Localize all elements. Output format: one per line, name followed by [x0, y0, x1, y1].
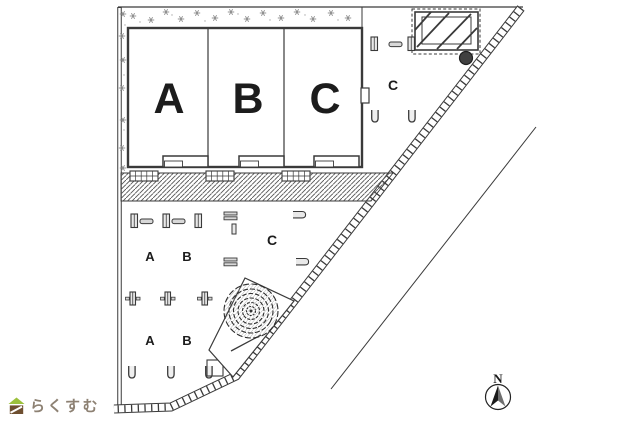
carport-structure: [412, 9, 480, 54]
unit-b-label: B: [232, 75, 263, 123]
wheel-stop-icon: [131, 214, 138, 228]
building-block: A B C: [128, 28, 369, 181]
wheel-stop-icon: [198, 292, 213, 305]
downspout-icon: [293, 212, 306, 218]
north-label: N: [493, 371, 503, 386]
side-door-bump: [361, 88, 369, 103]
upper-parking-zone: C: [371, 37, 415, 122]
wheel-stop-icon: [172, 219, 185, 224]
logo-house-icon: [8, 397, 25, 415]
downspout-icon: [129, 366, 135, 378]
grate-icon: [224, 212, 237, 220]
logo-text: らくすむ: [30, 399, 100, 414]
unit-a-label: A: [153, 75, 184, 123]
dark-circle-marker: [460, 52, 473, 65]
wheel-stop-icon: [408, 37, 415, 51]
parking-b2-label: B: [182, 333, 191, 348]
site-plan-drawing: A B C: [0, 0, 640, 425]
parking-c-upper-label: C: [388, 77, 398, 93]
downspout-icon: [409, 110, 415, 122]
logo: らくすむ: [8, 397, 100, 415]
north-arrow: N: [486, 371, 511, 410]
downspout-icon: [296, 259, 309, 265]
parking-b1-label: B: [182, 249, 191, 264]
downspout-icon: [372, 110, 378, 122]
parking-c-mid-label: C: [267, 232, 277, 248]
unit-c-label: C: [309, 75, 340, 123]
grate-icon: [224, 258, 237, 266]
wheel-stop-icon: [163, 214, 170, 228]
entrance-alcoves: [163, 156, 359, 167]
wheel-stop-icon: [161, 292, 176, 305]
wheel-stop-icon: [126, 292, 141, 305]
entrance-porches: [130, 171, 310, 181]
porch-b: [206, 171, 234, 181]
porch-c: [282, 171, 310, 181]
wheel-stop-icon: [195, 214, 202, 228]
porch-a: [130, 171, 158, 181]
parking-a1-label: A: [145, 249, 155, 264]
wheel-stop-icon: [140, 219, 153, 224]
wheel-stop-icon: [371, 37, 378, 51]
downspout-icon: [168, 366, 174, 378]
hatched-walkway: [121, 173, 393, 201]
parking-a2-label: A: [145, 333, 155, 348]
site-plan-canvas: A B C: [0, 0, 640, 425]
post-icon: [232, 224, 236, 234]
wheel-stop-icon: [389, 42, 402, 47]
